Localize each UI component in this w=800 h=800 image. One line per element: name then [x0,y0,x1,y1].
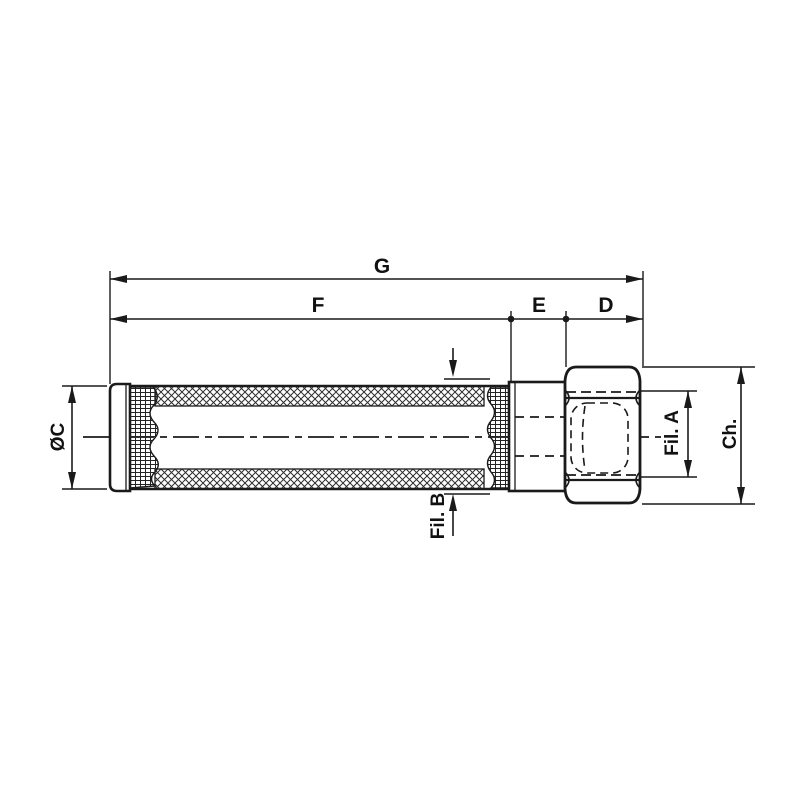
end-cap [110,384,130,491]
label-thread-a: Fil. A [662,410,683,456]
drawing-canvas: G F E D ØC Fil. B [0,0,800,800]
page: G F E D ØC Fil. B [0,0,800,800]
label-overall-length: G [374,255,390,278]
label-thread-b: Fil. B [428,493,449,539]
label-body-length: F [312,294,325,317]
label-collar-width: E [532,294,546,317]
technical-drawing: G F E D ØC Fil. B [0,0,800,800]
dim-dot [563,316,570,323]
knurl-band-bottom [155,469,484,489]
label-wrench-size: Ch. [720,419,741,450]
dim-dot [508,316,515,323]
collar [509,382,572,491]
hex-nut [565,367,640,503]
internal-thread-left [130,387,158,488]
label-nut-width: D [598,294,613,317]
label-body-diameter: ØC [48,422,69,451]
knurl-band-top [155,386,484,406]
